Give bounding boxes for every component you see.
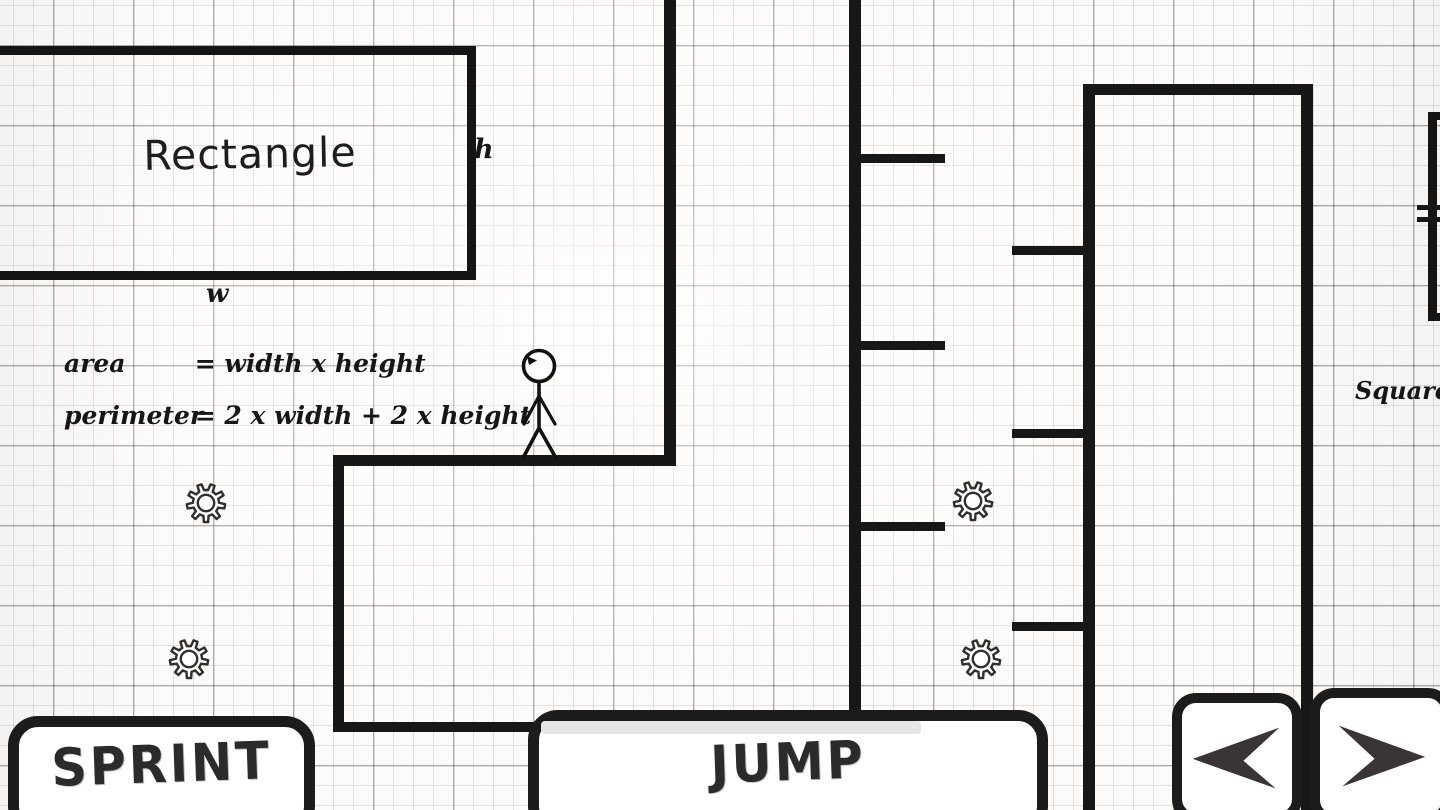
wall-segment	[1083, 84, 1313, 95]
formula-name: area	[64, 338, 186, 390]
right-arrow-icon	[1335, 721, 1427, 791]
nav-left-button[interactable]	[1172, 693, 1302, 810]
formula-list: area = width x height perimeter = 2 x wi…	[64, 338, 531, 442]
sprint-button-label: SPRINT	[25, 730, 298, 799]
player-stick-figure	[514, 344, 566, 464]
ladder-rung	[1012, 429, 1083, 438]
formula-expression: = 2 x width + 2 x height	[195, 401, 531, 430]
formula-row: perimeter = 2 x width + 2 x height	[64, 390, 531, 442]
ladder-rung	[855, 522, 945, 531]
formula-expression: = width x height	[195, 349, 426, 378]
wall-segment	[333, 455, 344, 732]
platform	[333, 455, 676, 466]
left-arrow-icon	[1191, 723, 1283, 793]
gear-icon	[959, 637, 1003, 681]
square-panel-tick	[1417, 217, 1440, 222]
formula-row: area = width x height	[64, 338, 531, 390]
ladder-rung	[855, 341, 945, 350]
ladder-rung	[855, 154, 945, 163]
nav-right-button[interactable]	[1310, 688, 1440, 810]
player-head	[524, 351, 555, 382]
game-viewport: Rectangle h w area = width x height peri…	[0, 0, 1440, 810]
gear-icon	[951, 479, 995, 523]
wall-segment	[664, 0, 676, 461]
wall-segment	[849, 0, 861, 810]
gear-icon	[184, 481, 228, 525]
square-title: Square	[1355, 376, 1440, 405]
player-legs	[523, 428, 556, 458]
jump-button-label: JUMP	[551, 725, 1026, 801]
jump-button[interactable]: JUMP	[528, 710, 1048, 810]
gear-icon	[167, 637, 211, 681]
height-label: h	[474, 134, 494, 165]
ladder-rung	[1012, 246, 1083, 255]
width-label: w	[206, 279, 228, 309]
ladder-rung	[1012, 622, 1083, 631]
formula-name: perimeter	[64, 390, 186, 442]
square-panel-tick	[1417, 205, 1440, 210]
rectangle-title: Rectangle	[60, 127, 441, 182]
wall-segment	[1083, 84, 1095, 810]
sprint-button[interactable]: SPRINT	[8, 716, 315, 810]
